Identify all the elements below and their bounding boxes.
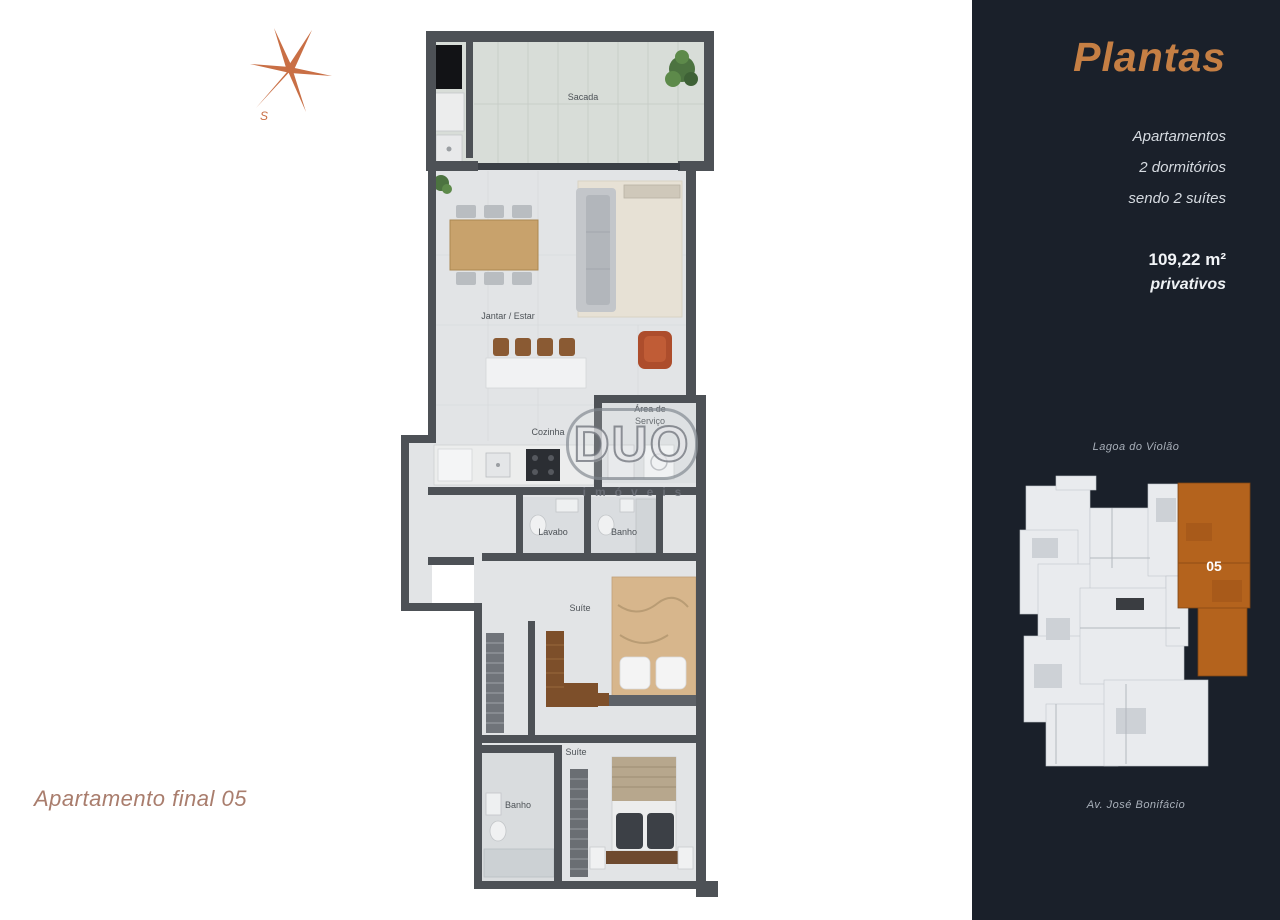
armchair (638, 331, 672, 369)
description-line: Apartamentos (1128, 128, 1226, 146)
bath1-sink (620, 499, 634, 512)
panel-area: 109,22 m² privativos (1149, 250, 1227, 294)
lavabo-sink (556, 499, 578, 512)
room-label-banho-suite: Banho (505, 800, 531, 810)
suite-bath-sink (486, 793, 501, 815)
apartment-caption: Apartamento final 05 (34, 786, 247, 812)
keyplan-unit-label: 05 (1206, 558, 1222, 574)
room-label-lavabo: Lavabo (538, 527, 568, 537)
compass-star (250, 28, 332, 112)
room-label-area-servico-2: Serviço (635, 416, 665, 426)
washing-machine-icon (644, 445, 674, 479)
panel-title: Plantas (1073, 34, 1226, 81)
suite-bath-toilet-icon (490, 821, 506, 841)
laundry-tank (608, 445, 634, 479)
grill-icon (434, 45, 462, 89)
cooktop-icon (526, 449, 560, 481)
room-label-suite-2: Suíte (565, 747, 586, 757)
closet-shelves (486, 633, 504, 733)
floorplan-svg: Sacada Jantar / Estar Cozinha Área de Se… (398, 5, 718, 917)
sofa (576, 188, 616, 312)
compass-south-label: S (260, 109, 268, 123)
page: S (0, 0, 1280, 920)
bath1-shower (636, 499, 656, 553)
compass-rose-icon: S (250, 28, 340, 146)
balcony-floor (436, 41, 704, 167)
info-panel: Plantas Apartamentos 2 dormitórios sendo… (972, 0, 1280, 920)
closet-wall (528, 621, 535, 735)
tv-console (624, 185, 680, 198)
room-label-jantar-estar: Jantar / Estar (481, 311, 535, 321)
keyplan-svg: 05 (1016, 468, 1256, 784)
floorplan: Sacada Jantar / Estar Cozinha Área de Se… (398, 5, 718, 917)
area-note: privativos (1149, 276, 1227, 294)
keyplan-bottom-label: Av. José Bonifácio (1016, 799, 1256, 811)
room-label-banho: Banho (611, 527, 637, 537)
room-label-cozinha: Cozinha (531, 427, 564, 437)
area-value: 109,22 m² (1149, 250, 1227, 270)
keyplan-top-label: Lagoa do Violão (1016, 441, 1256, 453)
void-notch (432, 565, 474, 605)
room-label-sacada: Sacada (568, 92, 599, 102)
panel-description: Apartamentos 2 dormitórios sendo 2 suíte… (1128, 128, 1226, 221)
description-line: 2 dormitórios (1128, 159, 1226, 177)
island-counter (486, 358, 586, 388)
sink-drain-icon (447, 147, 452, 152)
room-label-area-servico-1: Área de (634, 404, 666, 414)
kitchen-counter (434, 445, 594, 485)
description-line: sendo 2 suítes (1128, 190, 1226, 208)
suite-bath-shower (484, 849, 554, 877)
keyplan-unit-05 (1178, 483, 1250, 676)
closet-shelves-2 (570, 769, 588, 877)
bbq-counter (434, 93, 464, 131)
room-label-suite-1: Suíte (569, 603, 590, 613)
dining-table (450, 220, 538, 270)
